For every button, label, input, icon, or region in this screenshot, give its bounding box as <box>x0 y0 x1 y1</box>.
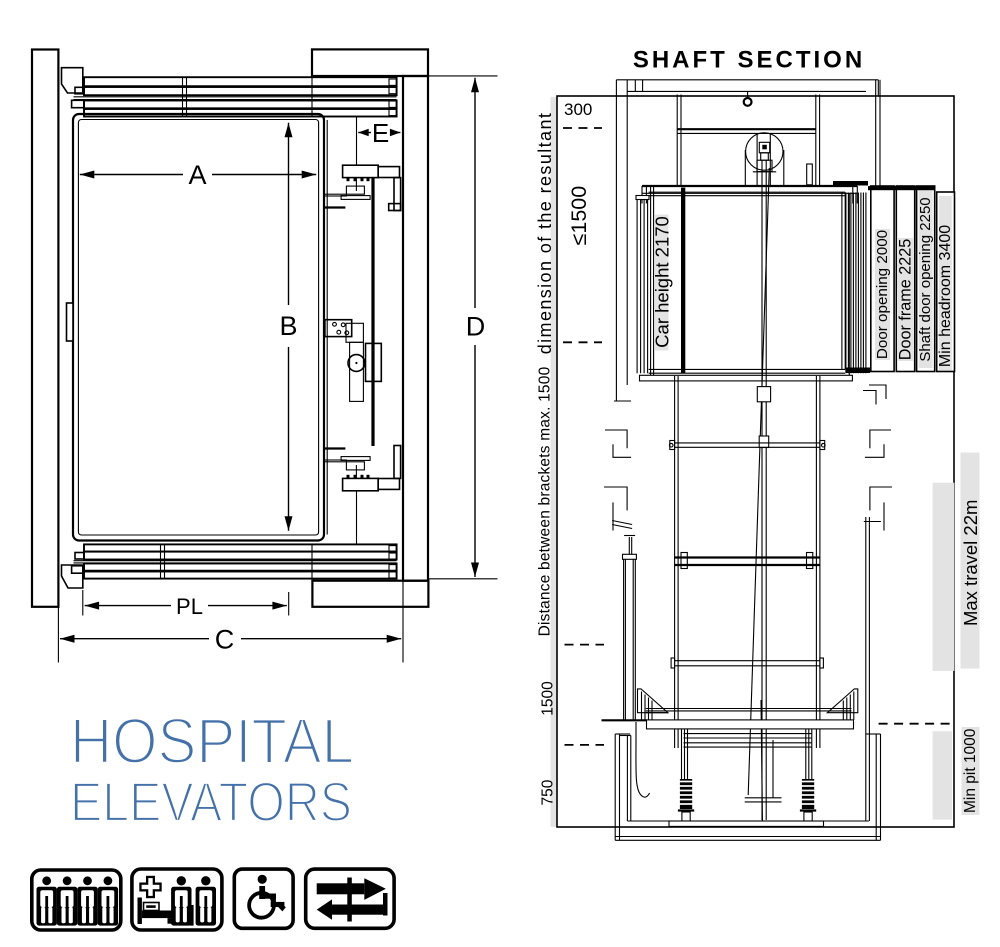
svg-text:Door frame 2225: Door frame 2225 <box>896 239 914 360</box>
svg-text:C: C <box>215 625 235 655</box>
svg-text:Min headroom 3400: Min headroom 3400 <box>937 225 954 367</box>
svg-text:ELEVATORS: ELEVATORS <box>70 770 352 833</box>
svg-text:Distance between brackets max.: Distance between brackets max. 1500 <box>537 366 554 636</box>
svg-text:SHAFT SECTION: SHAFT SECTION <box>633 47 865 74</box>
svg-text:Min pit 1000: Min pit 1000 <box>962 728 979 813</box>
svg-text:300: 300 <box>564 100 592 119</box>
svg-text:≤1500: ≤1500 <box>567 186 591 246</box>
svg-text:Door opening 2000: Door opening 2000 <box>874 230 891 359</box>
svg-text:D: D <box>466 312 486 342</box>
svg-text:Shaft door opening 2250: Shaft door opening 2250 <box>917 197 934 361</box>
svg-text:E: E <box>372 118 389 148</box>
svg-text:Car height 2170: Car height 2170 <box>651 216 672 348</box>
svg-text:750: 750 <box>539 779 556 805</box>
svg-text:dimension of the resultant: dimension of the resultant <box>535 112 555 355</box>
svg-text:B: B <box>279 311 297 341</box>
svg-text:Max travel 22m: Max travel 22m <box>960 500 981 626</box>
svg-text:PL: PL <box>176 594 203 619</box>
svg-text:A: A <box>188 160 206 190</box>
svg-text:1500: 1500 <box>539 681 556 716</box>
svg-text:HOSPITAL: HOSPITAL <box>70 705 354 777</box>
